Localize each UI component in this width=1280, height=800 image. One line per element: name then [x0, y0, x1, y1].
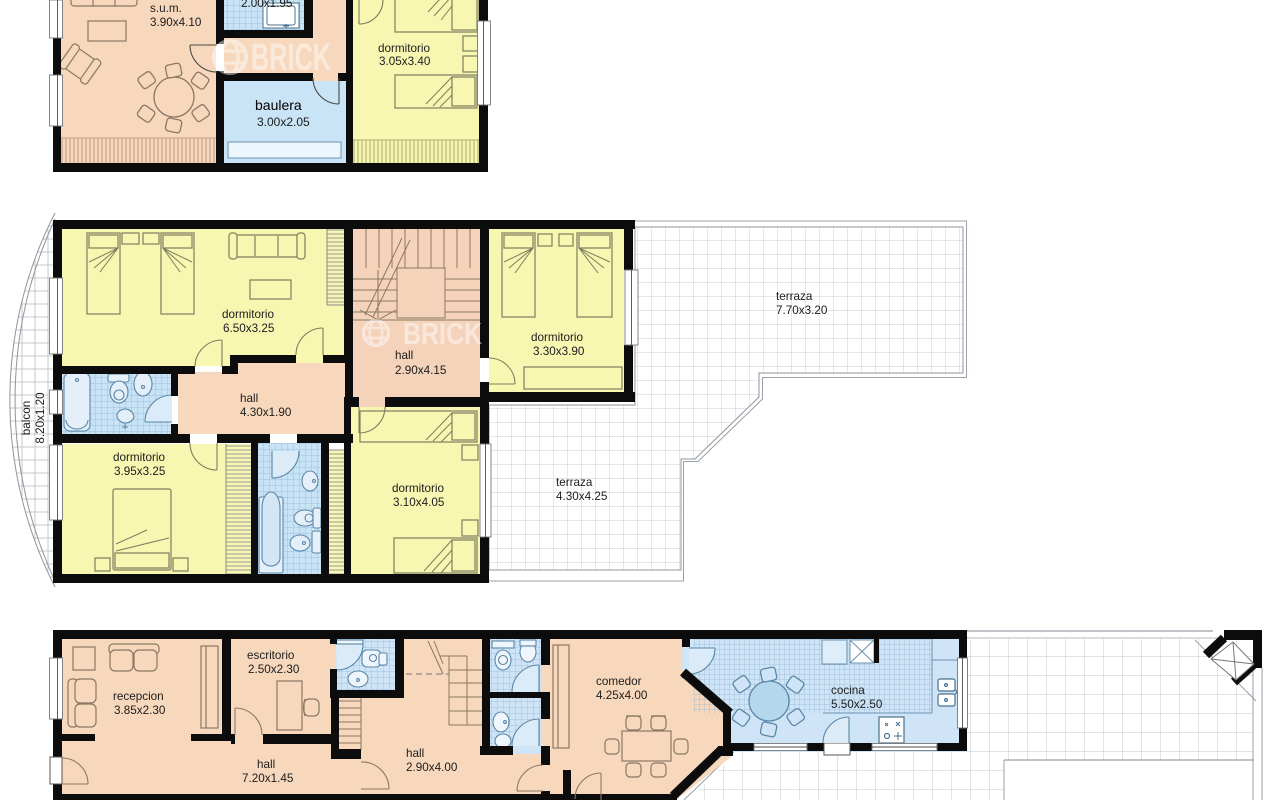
svg-text:dormitorio: dormitorio: [531, 331, 583, 344]
svg-text:comedor: comedor: [596, 675, 642, 688]
svg-text:3.10x4.05: 3.10x4.05: [393, 496, 445, 509]
svg-text:4.30x4.25: 4.30x4.25: [556, 490, 608, 503]
svg-text:dormitorio: dormitorio: [113, 451, 165, 464]
svg-text:8.20x1.20: 8.20x1.20: [34, 392, 47, 444]
svg-text:terraza: terraza: [556, 476, 593, 489]
svg-text:7.20x1.45: 7.20x1.45: [242, 772, 294, 785]
svg-text:7.70x3.20: 7.70x3.20: [776, 304, 828, 317]
svg-text:BRICK: BRICK: [251, 37, 331, 79]
svg-text:dormitorio: dormitorio: [222, 308, 274, 321]
svg-text:dormitorio: dormitorio: [392, 482, 444, 495]
svg-text:6.50x3.25: 6.50x3.25: [223, 322, 275, 335]
svg-text:recepcion: recepcion: [113, 690, 164, 703]
svg-text:5.50x2.50: 5.50x2.50: [831, 698, 883, 711]
svg-text:3.00x2.05: 3.00x2.05: [257, 115, 310, 129]
svg-text:3.95x3.25: 3.95x3.25: [114, 465, 166, 478]
svg-text:4.30x1.90: 4.30x1.90: [240, 406, 292, 419]
svg-text:4.25x4.00: 4.25x4.00: [596, 689, 648, 702]
svg-text:2.90x4.15: 2.90x4.15: [395, 364, 447, 377]
svg-text:hall: hall: [406, 747, 424, 760]
svg-text:2.90x4.00: 2.90x4.00: [406, 761, 458, 774]
svg-text:s.u.m.: s.u.m.: [150, 2, 182, 15]
svg-text:terraza: terraza: [776, 290, 813, 303]
svg-text:BRICK: BRICK: [403, 316, 482, 351]
svg-text:escritorio: escritorio: [247, 649, 295, 662]
svg-text:3.85x2.30: 3.85x2.30: [114, 704, 166, 717]
svg-text:hall: hall: [257, 758, 275, 771]
svg-text:3.30x3.90: 3.30x3.90: [533, 345, 585, 358]
svg-text:2.00x1.95: 2.00x1.95: [241, 0, 293, 10]
svg-text:baulera: baulera: [255, 97, 302, 113]
svg-text:cocina: cocina: [831, 684, 865, 697]
svg-text:hall: hall: [240, 392, 258, 405]
svg-text:3.90x4.10: 3.90x4.10: [150, 16, 202, 29]
svg-text:2.50x2.30: 2.50x2.30: [248, 663, 300, 676]
svg-text:3.05x3.40: 3.05x3.40: [379, 55, 431, 68]
svg-text:balcon: balcon: [20, 401, 33, 435]
svg-text:dormitorio: dormitorio: [378, 42, 430, 55]
